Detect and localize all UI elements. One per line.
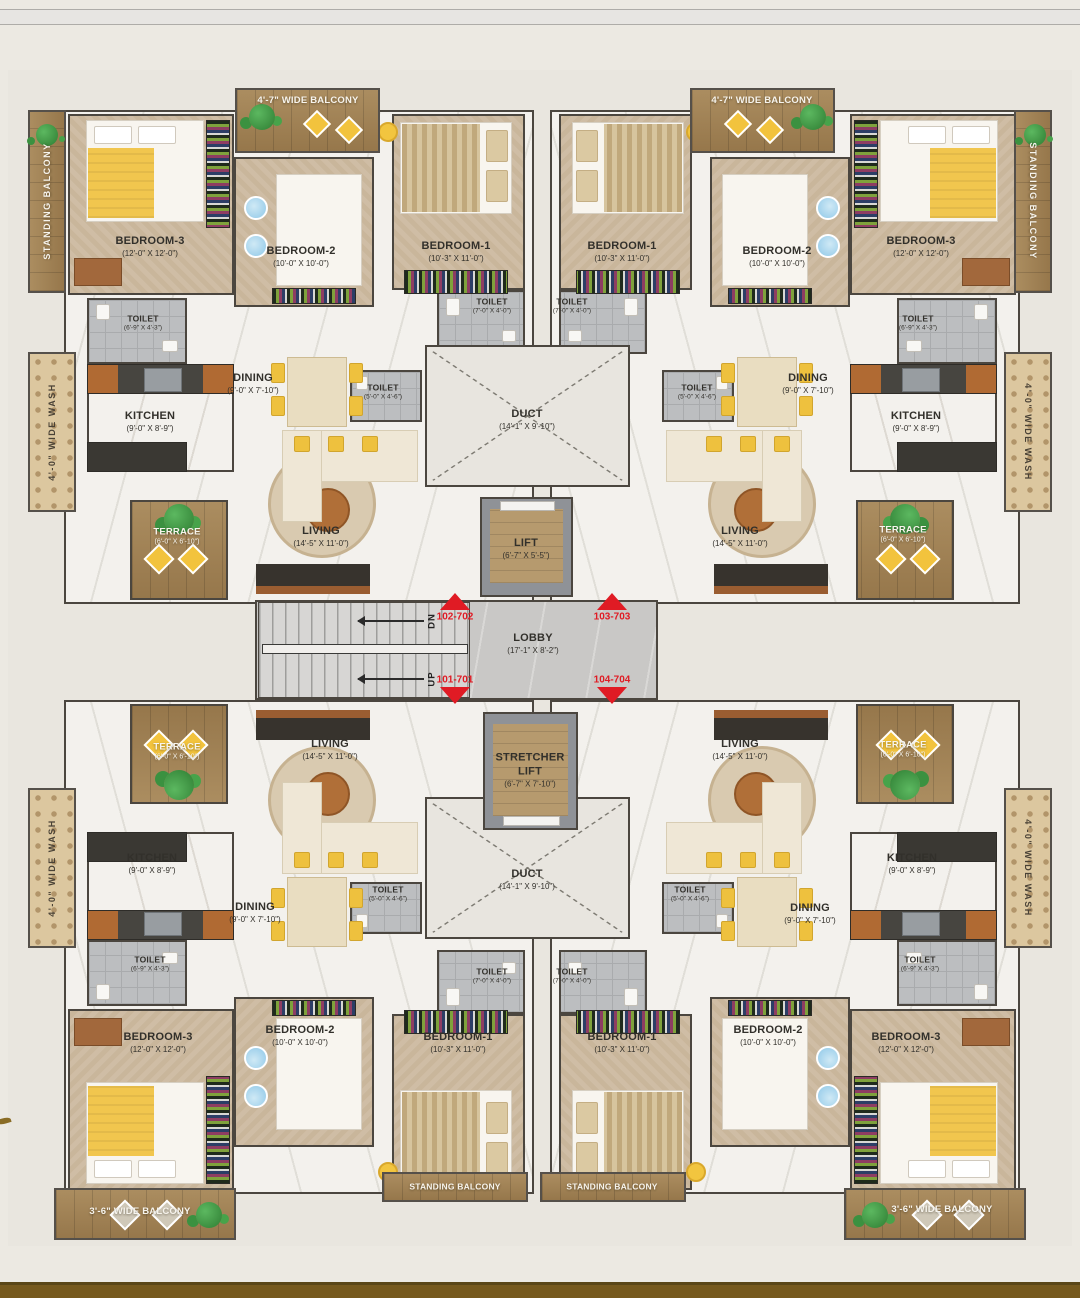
br-toilet-label: TOILET(7'-0" X 4'-0") <box>553 967 591 986</box>
tv-unit <box>256 564 370 586</box>
tl-bedroom-2-label: BEDROOM-2(10'-0" X 10'-0") <box>266 245 335 269</box>
pillow <box>576 170 598 202</box>
round-chair <box>244 234 268 258</box>
balcony-chair <box>756 116 784 144</box>
study-desk <box>74 258 122 286</box>
tr-standing-balcony-label: STANDING BALCONY <box>1028 142 1038 259</box>
toilet-fixture <box>446 298 460 316</box>
balcony-chair <box>335 116 363 144</box>
tr-bedroom-3-label: BEDROOM-3(12'-0" X 12'-0") <box>886 235 955 259</box>
tv-unit <box>714 564 828 586</box>
stairs-down-arrow <box>358 620 424 622</box>
tv-shelf <box>256 586 370 594</box>
pillow <box>138 126 176 144</box>
bl-toilet-label: TOILET(5'-0" X 4'-6") <box>369 885 407 904</box>
bl-standing-balcony-label: STANDING BALCONY <box>409 1182 500 1193</box>
bl-wide-balcony-label: 3'-6" WIDE BALCONY <box>89 1206 190 1218</box>
br-toilet-label: TOILET(6'-9" X 4'-3") <box>901 955 939 974</box>
br-bedroom-1-label: BEDROOM-1(10'-3" X 11'-0") <box>587 1031 656 1055</box>
pillow <box>576 1102 598 1134</box>
cushion <box>294 852 310 868</box>
br-wide-balcony-label: 3'-6" WIDE BALCONY <box>891 1204 992 1216</box>
br-wide-wash-label: 4'-0" WIDE WASH <box>1023 819 1033 916</box>
tr-wide-balcony-label: 4'-7" WIDE BALCONY <box>711 95 812 107</box>
balcony-chair <box>303 110 331 138</box>
stretcher-lift-door <box>503 816 560 826</box>
tr-bedroom-1-label: BEDROOM-1(10'-3" X 11'-0") <box>587 240 656 264</box>
sink <box>906 340 922 352</box>
plant-icon <box>249 104 275 130</box>
unit-marker-down-icon <box>440 687 470 704</box>
tv-unit <box>256 718 370 740</box>
unit-marker-down-icon <box>597 687 627 704</box>
toilet-fixture <box>974 984 988 1000</box>
tl-dining-label: DINING(9'-0" X 7'-10") <box>227 372 278 396</box>
bed-cover <box>604 124 682 212</box>
blanket <box>930 148 996 218</box>
tr-terrace-label: TERRACE(6'-0" X 6'-10") <box>879 525 926 546</box>
bl-bedroom-1-label: BEDROOM-1(10'-3" X 11'-0") <box>423 1031 492 1055</box>
cushion <box>740 436 756 452</box>
wardrobe <box>854 120 878 228</box>
tl-standing-balcony-label: STANDING BALCONY <box>42 142 52 259</box>
tl-bedroom-1-label: BEDROOM-1(10'-3" X 11'-0") <box>421 240 490 264</box>
tl-toilet-label: TOILET(7'-0" X 4'-0") <box>473 297 511 316</box>
toilet-fixture <box>624 298 638 316</box>
br-bedroom-3-label: BEDROOM-3(12'-0" X 12'-0") <box>871 1031 940 1055</box>
unit-number-104-704: 104-704 <box>594 675 631 686</box>
wardrobe <box>272 288 356 304</box>
toilet-fixture <box>96 984 110 1000</box>
bed-cover <box>402 1092 480 1180</box>
tl-toilet-label: TOILET(5'-0" X 4'-6") <box>364 383 402 402</box>
stairs-down-label: DN <box>427 613 438 629</box>
tr-living-label: LIVING(14'-5" X 11'-0") <box>712 525 767 549</box>
dining-chair <box>721 363 735 383</box>
stove <box>902 368 940 392</box>
floor-plan-page: 102-702 103-703 101-701 104-704 BEDROOM-… <box>0 0 1080 1298</box>
plant-icon <box>164 770 194 800</box>
bl-bedroom-3-label: BEDROOM-3(12'-0" X 12'-0") <box>123 1031 192 1055</box>
dining-chair <box>271 396 285 416</box>
round-chair <box>244 1084 268 1108</box>
dining-chair <box>349 921 363 941</box>
lift-label: LIFT(6'-7" X 5'-5") <box>503 537 550 561</box>
stair-rail <box>262 644 468 654</box>
pouf <box>378 122 398 142</box>
pillow <box>952 1160 990 1178</box>
blanket <box>930 1086 996 1156</box>
sink <box>162 340 178 352</box>
blanket <box>88 1086 154 1156</box>
study-desk <box>962 258 1010 286</box>
stove <box>902 912 940 936</box>
wardrobe <box>404 270 508 294</box>
dining-table <box>287 357 347 427</box>
stairs-up-arrow <box>358 678 424 680</box>
kitchen-counter <box>897 442 997 472</box>
br-toilet-label: TOILET(5'-0" X 4'-6") <box>671 885 709 904</box>
cushion <box>706 436 722 452</box>
balcony-chair <box>724 110 752 138</box>
tl-living-label: LIVING(14'-5" X 11'-0") <box>293 525 348 549</box>
pillow <box>486 170 508 202</box>
pillow <box>94 1160 132 1178</box>
bl-dining-label: DINING(9'-0" X 7'-10") <box>229 901 280 925</box>
duct-bottom-label: DUCT(14'-1" X 9'-10") <box>499 868 555 892</box>
br-bedroom-2-label: BEDROOM-2(10'-0" X 10'-0") <box>733 1024 802 1048</box>
toilet-fixture <box>974 304 988 320</box>
lobby-label: LOBBY(17'-1" X 8'-2") <box>507 632 558 656</box>
dining-table <box>287 877 347 947</box>
round-chair <box>816 1084 840 1108</box>
tl-kitchen-label: KITCHEN(9'-0" X 8'-9") <box>125 410 175 434</box>
lift-door <box>500 501 555 511</box>
pillow <box>486 1142 508 1174</box>
pillow <box>908 1160 946 1178</box>
stairs-up-label: UP <box>427 671 438 686</box>
cushion <box>328 436 344 452</box>
cushion <box>706 852 722 868</box>
dining-chair <box>721 888 735 908</box>
tr-toilet-label: TOILET(6'-9" X 4'-3") <box>899 314 937 333</box>
pillow <box>138 1160 176 1178</box>
round-chair <box>816 1046 840 1070</box>
top-border-band <box>0 9 1080 25</box>
pouf <box>686 1162 706 1182</box>
single-bed <box>722 174 808 286</box>
pillow <box>94 126 132 144</box>
cushion <box>328 852 344 868</box>
kitchen-counter <box>87 442 187 472</box>
apartment-unit <box>550 700 1020 1194</box>
plant-icon <box>196 1202 222 1228</box>
sink <box>568 330 582 342</box>
pillow <box>952 126 990 144</box>
unit-marker-up-icon <box>440 593 470 610</box>
wardrobe <box>576 270 680 294</box>
wardrobe <box>854 1076 878 1184</box>
round-chair <box>816 234 840 258</box>
stove <box>144 912 182 936</box>
bl-bedroom-2-label: BEDROOM-2(10'-0" X 10'-0") <box>265 1024 334 1048</box>
pillow <box>576 130 598 162</box>
duct-top-label: DUCT(14'-1" X 9'-10") <box>499 408 555 432</box>
wardrobe <box>728 288 812 304</box>
bed-cover <box>402 124 480 212</box>
wardrobe <box>206 120 230 228</box>
cushion <box>740 852 756 868</box>
plant-icon <box>890 770 920 800</box>
tr-wide-wash-label: 4'-0" WIDE WASH <box>1023 383 1033 480</box>
study-desk <box>962 1018 1010 1046</box>
tl-wide-balcony-label: 4'-7" WIDE BALCONY <box>257 95 358 107</box>
dining-chair <box>349 396 363 416</box>
dining-chair <box>349 888 363 908</box>
tl-bedroom-3-label: BEDROOM-3(12'-0" X 12'-0") <box>115 235 184 259</box>
bl-terrace-label: TERRACE(6'-0" X 6'-10") <box>153 742 200 763</box>
tr-toilet-label: TOILET(5'-0" X 4'-6") <box>678 383 716 402</box>
round-chair <box>244 1046 268 1070</box>
tv-shelf <box>714 586 828 594</box>
br-standing-balcony-label: STANDING BALCONY <box>566 1182 657 1193</box>
cushion <box>362 852 378 868</box>
tv-shelf <box>714 710 828 718</box>
br-living-label: LIVING(14'-5" X 11'-0") <box>712 738 767 762</box>
dining-chair <box>721 396 735 416</box>
study-desk <box>74 1018 122 1046</box>
br-terrace-label: TERRACE(6'-0" X 6'-10") <box>879 740 926 761</box>
stove <box>144 368 182 392</box>
bl-toilet-label: TOILET(7'-0" X 4'-0") <box>473 967 511 986</box>
bl-wide-wash-label: 4'-0" WIDE WASH <box>47 819 57 916</box>
tv-unit <box>714 718 828 740</box>
tr-dining-label: DINING(9'-0" X 7'-10") <box>782 372 833 396</box>
tr-bedroom-2-label: BEDROOM-2(10'-0" X 10'-0") <box>742 245 811 269</box>
unit-number-102-702: 102-702 <box>437 612 474 623</box>
bl-toilet-label: TOILET(6'-9" X 4'-3") <box>131 955 169 974</box>
bl-living-label: LIVING(14'-5" X 11'-0") <box>302 738 357 762</box>
tl-terrace-label: TERRACE(6'-0" X 6'-10") <box>153 527 200 548</box>
tl-toilet-label: TOILET(6'-9" X 4'-3") <box>124 314 162 333</box>
round-chair <box>244 196 268 220</box>
toilet-fixture <box>446 988 460 1006</box>
unit-number-103-703: 103-703 <box>594 612 631 623</box>
br-kitchen-label: KITCHEN(9'-0" X 8'-9") <box>887 852 937 876</box>
bl-kitchen-label: KITCHEN(9'-0" X 8'-9") <box>127 852 177 876</box>
unit-number-101-701: 101-701 <box>437 675 474 686</box>
dining-chair <box>349 363 363 383</box>
round-chair <box>816 196 840 220</box>
sink <box>502 330 516 342</box>
cushion <box>294 436 310 452</box>
stretcher-lift-label: STRETCHERLIFT(6'-7" X 7'-10") <box>495 751 564 789</box>
bed-cover <box>604 1092 682 1180</box>
unit-marker-up-icon <box>597 593 627 610</box>
cushion <box>362 436 378 452</box>
blanket <box>88 148 154 218</box>
tv-shelf <box>256 710 370 718</box>
plant-icon <box>800 104 826 130</box>
tl-wide-wash-label: 4'-0" WIDE WASH <box>47 383 57 480</box>
dining-chair <box>721 921 735 941</box>
pillow <box>908 126 946 144</box>
cushion <box>774 436 790 452</box>
bottom-border-band <box>0 1282 1080 1298</box>
single-bed <box>276 174 362 286</box>
br-dining-label: DINING(9'-0" X 7'-10") <box>784 902 835 926</box>
tr-toilet-label: TOILET(7'-0" X 4'-0") <box>553 297 591 316</box>
plant-icon <box>862 1202 888 1228</box>
pillow <box>576 1142 598 1174</box>
apartment-unit <box>64 700 534 1194</box>
tr-kitchen-label: KITCHEN(9'-0" X 8'-9") <box>891 410 941 434</box>
wardrobe <box>728 1000 812 1016</box>
toilet-fixture <box>624 988 638 1006</box>
dining-chair <box>799 396 813 416</box>
wardrobe <box>272 1000 356 1016</box>
wardrobe <box>206 1076 230 1184</box>
cushion <box>774 852 790 868</box>
pillow <box>486 130 508 162</box>
toilet-fixture <box>96 304 110 320</box>
pillow <box>486 1102 508 1134</box>
